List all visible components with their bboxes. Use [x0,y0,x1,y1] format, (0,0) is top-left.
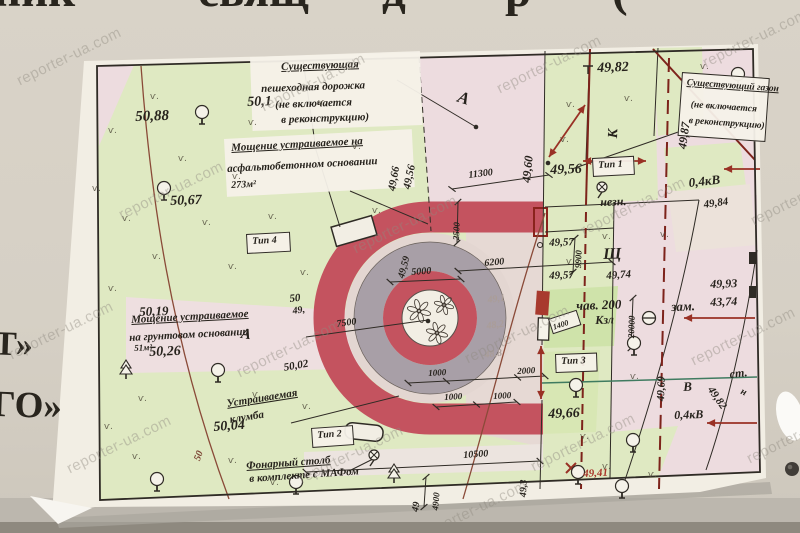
dimension: 1000 [428,368,446,378]
grass-icon: ѵ. [660,230,669,240]
elevation: 49,74 [606,269,631,282]
pole-mark [749,286,756,298]
elevation: 49,3 [519,480,530,498]
grass-icon: ѵ. [268,212,277,222]
grass-icon: ѵ. [700,62,709,72]
grass-icon: ѵ. [228,456,237,466]
grass-icon: ѵ. [138,394,147,404]
dimension: 2000 [517,366,535,376]
banner-top-fragment: ( [612,0,628,18]
dimension: 9900 [574,250,584,268]
leader-dot [474,125,479,130]
power-line-04kv-top: 0,4кВ [688,173,721,189]
bolt-head [785,462,799,476]
elevation: 50 [289,293,301,305]
power-line-04kv-bottom: 0,4кВ [674,408,703,421]
leader-dot [426,319,431,324]
grass-icon: ѵ. [108,284,117,294]
grass-icon: ѵ. [92,184,101,194]
grass-icon: ѵ. [248,118,257,128]
grass-icon: ѵ. [300,268,309,278]
grass-icon: ѵ. [560,135,569,145]
dimension: 10500 [463,449,489,461]
bolt-highlight [788,465,793,470]
grass-icon: ѵ. [580,432,589,442]
dimension: 5000 [411,267,432,278]
type-4-label: Тип 4 [252,236,277,247]
elevation: 49,87 [676,121,692,149]
grass-icon: ѵ. [318,98,327,108]
banner-top-fragment: р [505,0,531,18]
pole-mark [749,252,756,264]
elevation: 50,67 [170,194,202,209]
elevation: 50,88 [135,109,169,125]
grass-icon: ѵ. [104,422,113,432]
paper-reflection [771,389,800,444]
banner-left-line-2: ГО» [0,383,63,428]
grass-icon: ѵ. [132,452,141,462]
note-nezn: незн. [600,195,627,208]
elevation: 49,66 [548,407,580,422]
dimension: 1000 [444,392,462,402]
elevation: 49,69 [656,376,668,401]
type-3-label: Тип 3 [561,356,586,367]
elevation: 49 [411,501,423,513]
elevation: 49,57 [549,237,574,249]
elevation: 49,93 [710,277,737,290]
note-zam: зам. [671,299,695,313]
utility-cabinet-red [535,291,550,316]
elevation: 50,19 [139,304,169,318]
elevation: 43,74 [710,295,737,308]
grass-icon: ѵ. [178,154,187,164]
note-kzl: Кзл [595,313,614,326]
grass-icon: ѵ. [152,252,161,262]
note-chav-200: чав. 200 [576,297,622,312]
elevation: 49,82 [597,61,629,76]
elevation: 50,04 [213,419,245,435]
banner-top-fragment: д [382,0,406,18]
elevation: 50,1 [247,95,272,110]
banner-top-fragment: свящ [198,0,309,18]
grass-icon: ѵ. [252,390,261,400]
type-1-label: Тип 1 [598,160,623,171]
grass-icon: ѵ. [566,100,575,110]
utility-letter-k: К [607,129,621,139]
banner-left-line-1: Т» [0,325,33,364]
grass-icon: ѵ. [352,142,361,152]
elevation: 49,60 [520,155,535,183]
banner-top-cropped-text: никсвящдр( [0,0,800,24]
dimension: 6200 [484,257,505,269]
dimension: 2500 [452,222,462,240]
pale-patch-4984 [668,184,757,252]
grass-icon: ѵ. [228,262,237,272]
grass-icon: ѵ. [150,92,159,102]
photo-of-site-plan: Существующаяпешеходная дорожка(не включа… [0,0,800,533]
dimension: 1000 [493,391,511,401]
grass-icon: ѵ. [648,470,657,480]
manhole-icon [642,312,656,325]
grass-icon: ѵ. [372,206,381,216]
grass-icon: ѵ. [602,232,611,242]
elevation: 49,57 [549,270,574,282]
type-2-label: Тип 2 [317,429,342,441]
note-st: ст. [729,366,748,380]
grass-icon: ѵ. [270,478,279,488]
grass-icon: ѵ. [602,462,611,472]
dimension: 4900 [431,492,442,511]
utility-letter-v: В [683,380,692,393]
banner-top-fragment: ник [0,0,75,18]
grass-icon: ѵ. [302,402,311,412]
grass-icon: ѵ. [232,172,241,182]
utility-cabinet [538,318,550,340]
elevation: 49, [292,305,306,317]
grass-icon: ѵ. [108,126,117,136]
letter-a-mid: А [240,327,252,343]
grass-icon: ѵ. [122,214,131,224]
grass-icon: ѵ. [624,94,633,104]
elevation: 49,56 [550,163,582,178]
grass-icon: ѵ. [202,218,211,228]
grass-icon: ѵ. [566,257,575,267]
utility-letter-shch: Щ [603,246,622,263]
elevation: 50,26 [149,345,181,360]
grass-icon: ѵ. [630,372,639,382]
dimension: 20000 [627,316,637,339]
